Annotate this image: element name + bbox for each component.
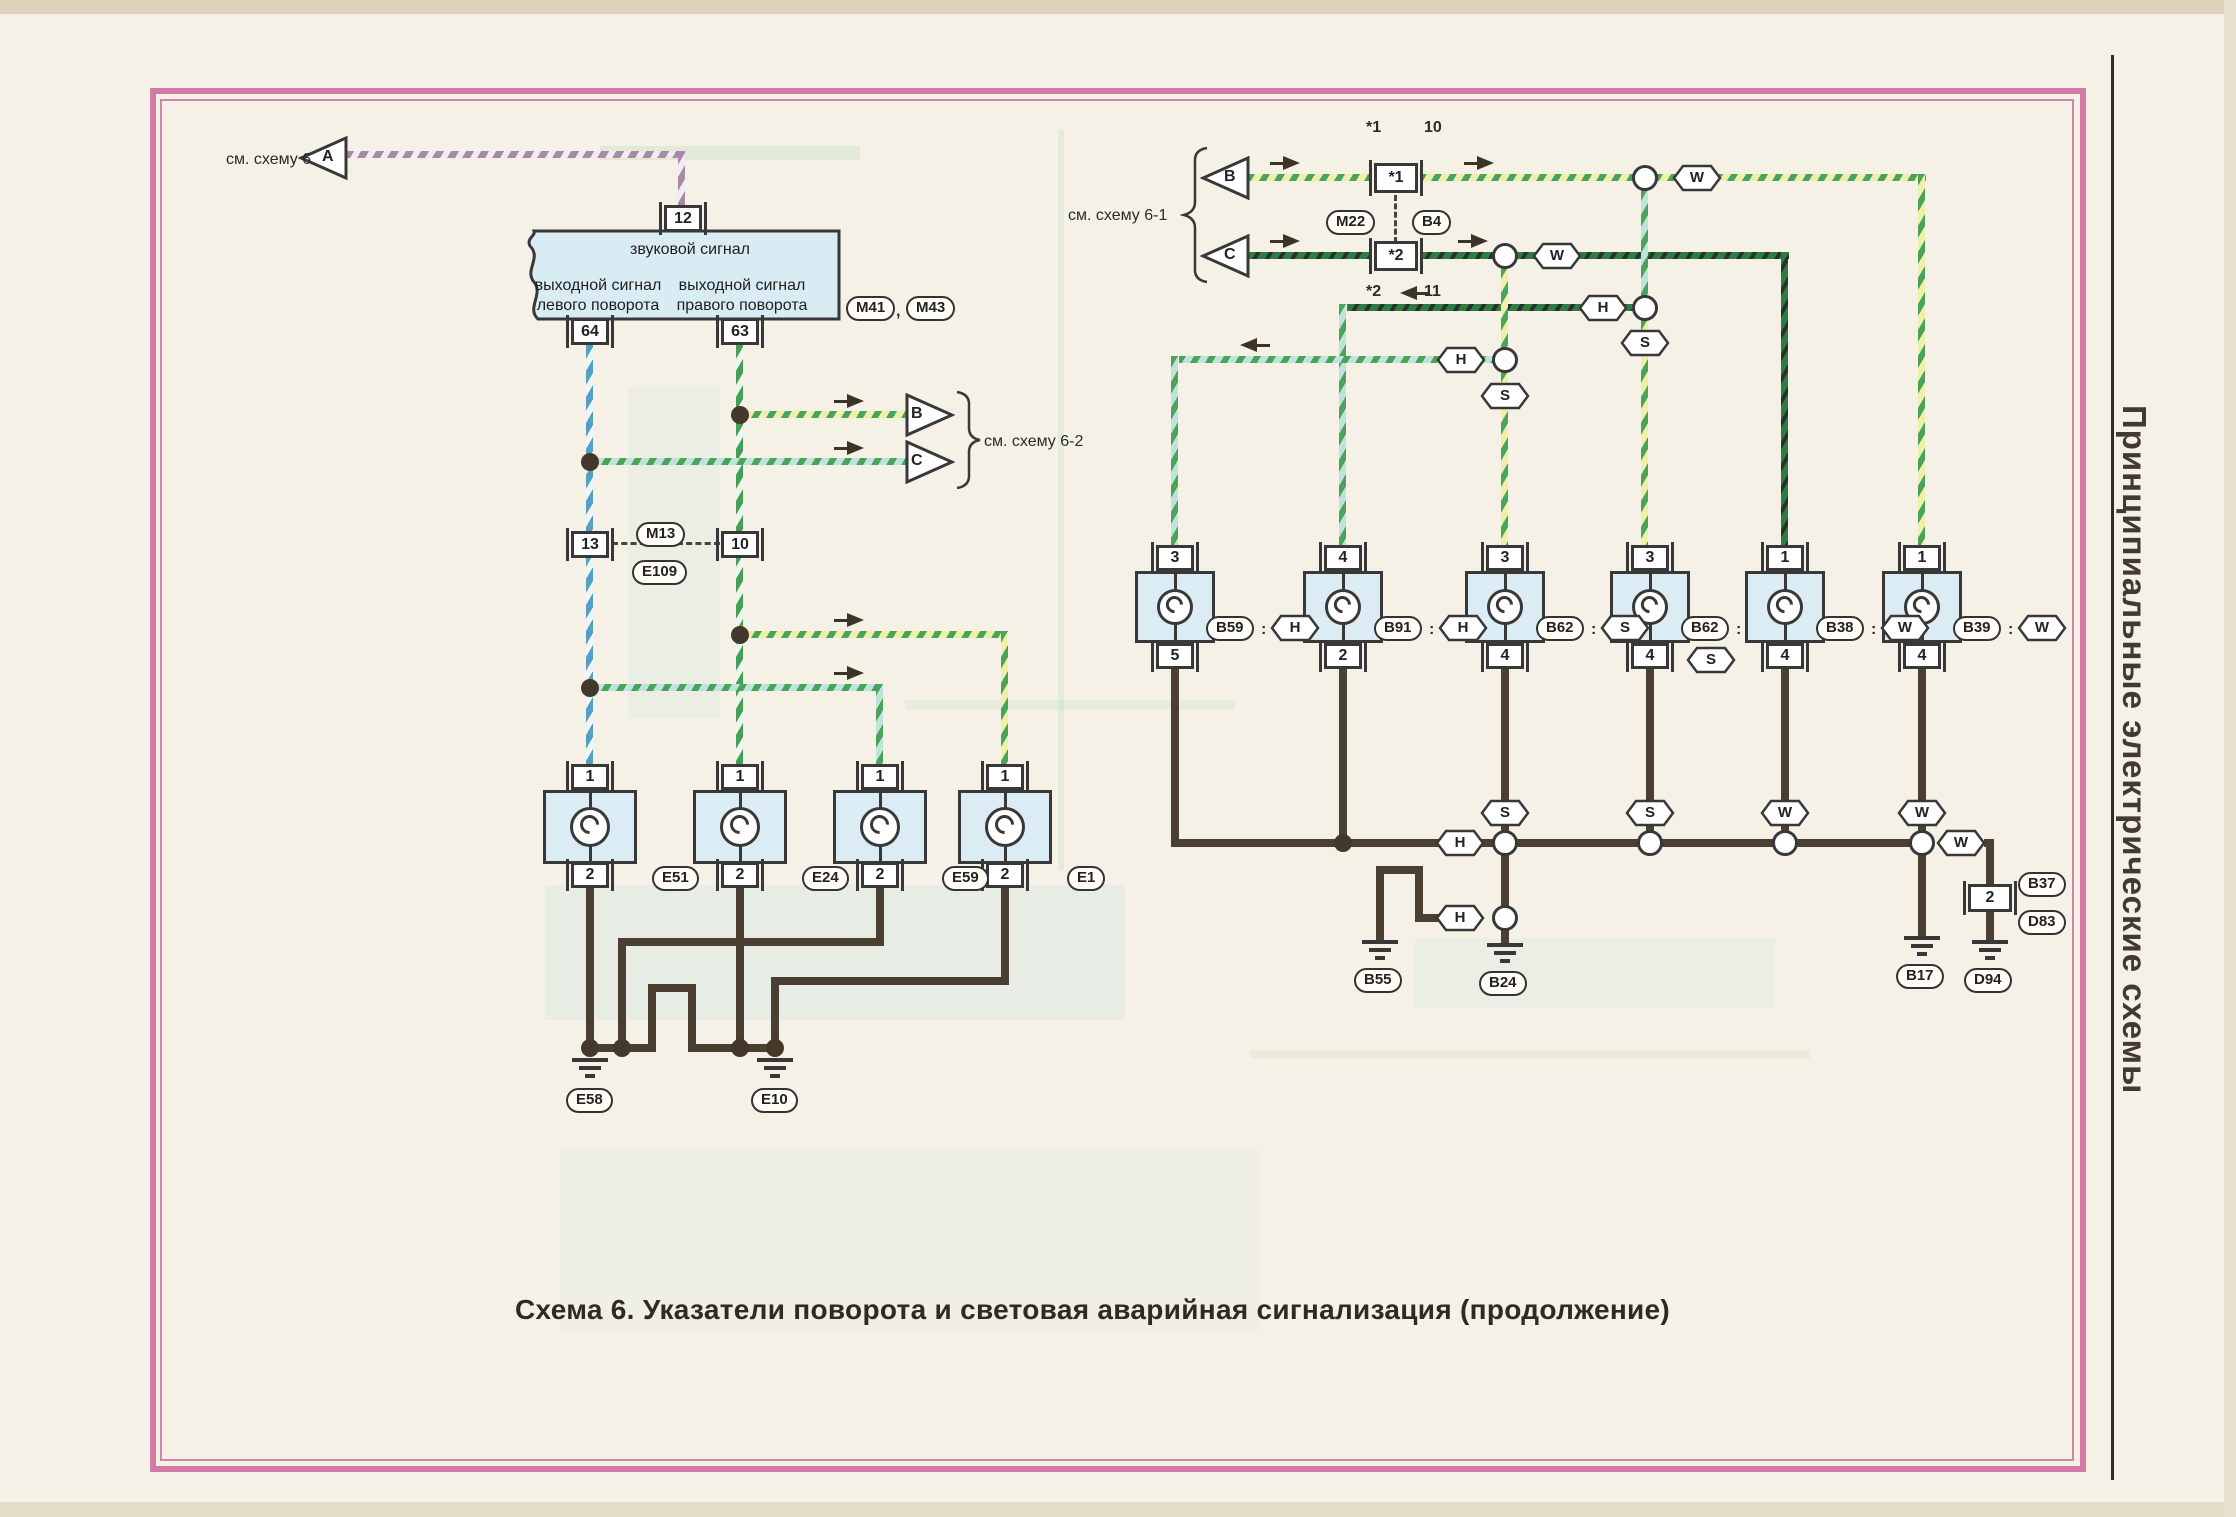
wire-branch-e1-drop bbox=[1001, 631, 1008, 771]
connector-pin-2: 2 bbox=[1968, 884, 2012, 912]
lamp-e24-bottom-pin: 2 bbox=[721, 862, 759, 888]
junction-dot bbox=[581, 453, 599, 471]
wire-gnd-e59-h bbox=[618, 938, 884, 946]
harness-code-hex-s: S bbox=[1625, 799, 1675, 827]
gnd-bus-right bbox=[1171, 839, 1926, 847]
lamp-bulb-icon bbox=[720, 807, 760, 847]
colon: : bbox=[1261, 622, 1266, 638]
harness-code-hex-h: H bbox=[1435, 829, 1485, 857]
harness-code-hex: S bbox=[1686, 646, 1736, 674]
ground-icon bbox=[757, 1058, 793, 1082]
wire-branch-b-out bbox=[740, 411, 910, 418]
direction-arrow-icon bbox=[832, 613, 864, 627]
junction-circle bbox=[1637, 830, 1663, 856]
page-right-edge bbox=[2224, 0, 2236, 1517]
wire-b59-down bbox=[1171, 669, 1179, 847]
lamp-b91-bottom-pin: 2 bbox=[1324, 643, 1362, 669]
sidebar-divider-line bbox=[2111, 55, 2114, 1480]
junction-dot bbox=[766, 1039, 784, 1057]
wire-gnd-e59-v1 bbox=[876, 888, 884, 945]
lamp-id-b38: B38 bbox=[1816, 616, 1864, 641]
lamp-b38-bottom-pin: 4 bbox=[1766, 643, 1804, 669]
harness-code-hex-h: H bbox=[1436, 346, 1486, 374]
horn-unit-title: звуковой сигнал bbox=[560, 240, 820, 260]
ground-icon bbox=[1487, 943, 1523, 967]
horn-pin-64: 64 bbox=[571, 318, 609, 345]
lamp-id-b62a: B62 bbox=[1536, 616, 1584, 641]
ground-icon bbox=[1972, 940, 2008, 964]
lamp-e1-bottom-pin: 2 bbox=[986, 862, 1024, 888]
wire-ref-a-vertical bbox=[678, 151, 685, 207]
direction-arrow-icon bbox=[832, 666, 864, 680]
harness-code-hex-w: W bbox=[1760, 799, 1810, 827]
ref-letter-c: C bbox=[1224, 247, 1274, 263]
ground-id-b24: B24 bbox=[1479, 971, 1527, 996]
harness-code-hex-s: S bbox=[1620, 329, 1670, 357]
horn-left-output-label-line1: выходной сигнал bbox=[528, 276, 668, 296]
lamp-e51-top-pin: 1 bbox=[571, 764, 609, 790]
colon: : bbox=[1736, 622, 1741, 638]
wire-gnd-e59-v2 bbox=[618, 938, 626, 1050]
lamp-bulb-icon bbox=[985, 807, 1025, 847]
gnd-bus-jog-left bbox=[648, 984, 656, 1052]
ref-triangle-c-out: C bbox=[905, 440, 955, 484]
wire-row-c-seg2 bbox=[1420, 252, 1494, 259]
direction-arrow-icon bbox=[1240, 338, 1272, 352]
junction-dot bbox=[731, 626, 749, 644]
wire-b24-down bbox=[1501, 929, 1509, 943]
lamp-e1-top-pin: 1 bbox=[986, 764, 1024, 790]
lamp-e24-top-pin: 1 bbox=[721, 764, 759, 790]
junction-dot bbox=[581, 679, 599, 697]
junction-circle bbox=[1772, 830, 1798, 856]
lamp-b62b-top-pin: 3 bbox=[1631, 545, 1669, 571]
lamp-e59-top-pin: 1 bbox=[861, 764, 899, 790]
harness-code-hex-w: W bbox=[1897, 799, 1947, 827]
lamp-id-e51: E51 bbox=[652, 866, 699, 891]
wire-b55-v2 bbox=[1376, 866, 1384, 940]
lamp-id-b39: B39 bbox=[1953, 616, 2001, 641]
comma: , bbox=[896, 304, 900, 320]
horn-pin-63: 63 bbox=[721, 318, 759, 345]
lamp-id-e1: E1 bbox=[1067, 866, 1105, 891]
wire-b55-h2 bbox=[1380, 866, 1423, 874]
connector-id-b37: B37 bbox=[2018, 872, 2066, 897]
lamp-b62b-bottom-pin: 4 bbox=[1631, 643, 1669, 669]
junction-circle bbox=[1492, 905, 1518, 931]
wire-branch-e59 bbox=[590, 684, 880, 691]
junction-circle bbox=[1632, 165, 1658, 191]
ground-icon bbox=[1362, 940, 1398, 964]
wire-gnd-e51 bbox=[586, 888, 594, 1048]
ref-see-schema-6-2-label: см. схему 6-2 bbox=[984, 432, 1083, 451]
ground-id-b17: B17 bbox=[1896, 964, 1944, 989]
lamp-b62a-bottom-pin: 4 bbox=[1486, 643, 1524, 669]
wire-b17-down bbox=[1918, 854, 1926, 936]
lamp-id-b62b: B62 bbox=[1681, 616, 1729, 641]
harness-code-hex-s: S bbox=[1480, 799, 1530, 827]
direction-arrow-icon bbox=[832, 394, 864, 408]
diagram-caption: Схема 6. Указатели поворота и световая а… bbox=[515, 1296, 1670, 1324]
ground-id-e58: E58 bbox=[566, 1088, 613, 1113]
harness-code-hex: W bbox=[2017, 614, 2067, 642]
horn-pin-12: 12 bbox=[664, 205, 702, 232]
junction-circle bbox=[1492, 830, 1518, 856]
ref-see-schema-6-1-label: см. схему 6-1 bbox=[1068, 206, 1167, 225]
lamp-bulb-icon bbox=[1767, 589, 1803, 625]
lamp-bulb-icon bbox=[1157, 589, 1193, 625]
connector-id-m13: M13 bbox=[636, 522, 685, 547]
harness-code-hex: W bbox=[1880, 614, 1930, 642]
harness-code-hex-w: W bbox=[1936, 829, 1986, 857]
harness-code-hex: H bbox=[1438, 614, 1488, 642]
wire-b55-v1 bbox=[1415, 866, 1423, 922]
connector-id-m41: M41 bbox=[846, 296, 895, 321]
wire-row-h1-drop-b91 bbox=[1339, 304, 1346, 547]
wire-ref-a-horizontal bbox=[346, 151, 682, 158]
wire-gnd-e24 bbox=[736, 888, 744, 1048]
connector-pin-10: 10 bbox=[721, 531, 759, 558]
lamp-bulb-icon bbox=[860, 807, 900, 847]
connector-pin-13: 13 bbox=[571, 531, 609, 558]
wire-bcircle-down bbox=[1641, 189, 1648, 299]
lamp-e59-bottom-pin: 2 bbox=[861, 862, 899, 888]
direction-arrow-icon bbox=[1400, 286, 1432, 300]
group-brace-out bbox=[954, 390, 984, 490]
ground-id-d94: D94 bbox=[1964, 968, 2012, 993]
connector-pin-star2: *2 bbox=[1374, 241, 1418, 271]
lamp-e51-bottom-pin: 2 bbox=[571, 862, 609, 888]
ref-letter-a: A bbox=[322, 149, 372, 165]
wire-branch-c-out bbox=[590, 458, 910, 465]
horn-right-output-label-line1: выходной сигнал bbox=[672, 276, 812, 296]
page-bottom-edge bbox=[0, 1502, 2236, 1517]
horn-right-output-label-line2: правого поворота bbox=[672, 296, 812, 316]
horn-left-output-label-line2: левого поворота bbox=[528, 296, 668, 316]
direction-arrow-icon bbox=[1268, 234, 1300, 248]
junction-circle bbox=[1909, 830, 1935, 856]
ground-id-b55: B55 bbox=[1354, 968, 1402, 993]
harness-code-hex-w: W bbox=[1532, 242, 1582, 270]
wire-gnd-e1-v1 bbox=[1001, 888, 1009, 985]
group-brace-in bbox=[1180, 146, 1210, 284]
wire-branch-e1 bbox=[740, 631, 1005, 638]
wire-row-h2-drop-b59 bbox=[1171, 356, 1178, 551]
direction-arrow-icon bbox=[832, 441, 864, 455]
wire-row-c-drop-b38 bbox=[1781, 252, 1788, 547]
wire-gnd-e1-h bbox=[771, 977, 1009, 985]
junction-circle bbox=[1632, 295, 1658, 321]
colon: : bbox=[1429, 622, 1434, 638]
harness-code-hex-s: S bbox=[1480, 382, 1530, 410]
lamp-b62a-top-pin: 3 bbox=[1486, 545, 1524, 571]
connector-id-b4: B4 bbox=[1412, 210, 1451, 235]
harness-code-hex-w: W bbox=[1672, 164, 1722, 192]
sidebar-title: Принципиальные электрические схемы bbox=[2118, 405, 2151, 1125]
connector-id-e109: E109 bbox=[632, 560, 687, 585]
lamp-id-e59: E59 bbox=[942, 866, 989, 891]
colon: : bbox=[1871, 622, 1876, 638]
ref-letter-b: B bbox=[1224, 169, 1274, 185]
connector-pin-star1: *1 bbox=[1374, 163, 1418, 193]
junction-dot bbox=[613, 1039, 631, 1057]
connector-id-m22: M22 bbox=[1326, 210, 1375, 235]
star2-note-left: *2 bbox=[1366, 284, 1381, 300]
colon: : bbox=[1591, 622, 1596, 638]
ground-id-e10: E10 bbox=[751, 1088, 798, 1113]
page-top-edge bbox=[0, 0, 2236, 14]
junction-dot bbox=[731, 406, 749, 424]
star1-note-right: 10 bbox=[1424, 120, 1442, 136]
wire-row-b-drop-b39 bbox=[1918, 174, 1925, 547]
direction-arrow-icon bbox=[1462, 156, 1494, 170]
colon: : bbox=[2008, 622, 2013, 638]
harness-code-hex-h: H bbox=[1435, 904, 1485, 932]
wire-circle-down1 bbox=[1501, 854, 1509, 909]
ref-triangle-b-out: B bbox=[905, 393, 955, 437]
harness-code-hex-h: H bbox=[1578, 294, 1628, 322]
connector-id-m43: M43 bbox=[906, 296, 955, 321]
direction-arrow-icon bbox=[1268, 156, 1300, 170]
direction-arrow-icon bbox=[1456, 234, 1488, 248]
wire-b91-down bbox=[1339, 669, 1347, 843]
lamp-bulb-icon bbox=[1487, 589, 1523, 625]
junction-circle bbox=[1492, 243, 1518, 269]
lamp-b38-top-pin: 1 bbox=[1766, 545, 1804, 571]
lamp-id-e24: E24 bbox=[802, 866, 849, 891]
ground-icon bbox=[1904, 936, 1940, 960]
connector-dashed-link bbox=[1394, 195, 1397, 243]
junction-circle bbox=[1492, 347, 1518, 373]
star1-note-left: *1 bbox=[1366, 120, 1381, 136]
junction-dot bbox=[581, 1039, 599, 1057]
lamp-id-b91: B91 bbox=[1374, 616, 1422, 641]
wire-branch-e59-drop bbox=[876, 684, 883, 770]
lamp-b59-top-pin: 3 bbox=[1156, 545, 1194, 571]
wire-row-b-seg2 bbox=[1420, 174, 1634, 181]
connector-id-d83: D83 bbox=[2018, 910, 2066, 935]
lamp-bulb-icon bbox=[1325, 589, 1361, 625]
ref-see-schema-6-label: см. схему 6 bbox=[226, 150, 311, 169]
ground-icon bbox=[572, 1058, 608, 1082]
lamp-b59-bottom-pin: 5 bbox=[1156, 643, 1194, 669]
junction-dot bbox=[1334, 834, 1352, 852]
gnd-bus-jog-right bbox=[688, 984, 696, 1052]
lamp-b39-bottom-pin: 4 bbox=[1903, 643, 1941, 669]
harness-code-hex: H bbox=[1270, 614, 1320, 642]
lamp-id-b59: B59 bbox=[1206, 616, 1254, 641]
junction-dot bbox=[731, 1039, 749, 1057]
lamp-bulb-icon bbox=[570, 807, 610, 847]
lamp-b91-top-pin: 4 bbox=[1324, 545, 1362, 571]
lamp-b39-top-pin: 1 bbox=[1903, 545, 1941, 571]
harness-code-hex: S bbox=[1600, 614, 1650, 642]
